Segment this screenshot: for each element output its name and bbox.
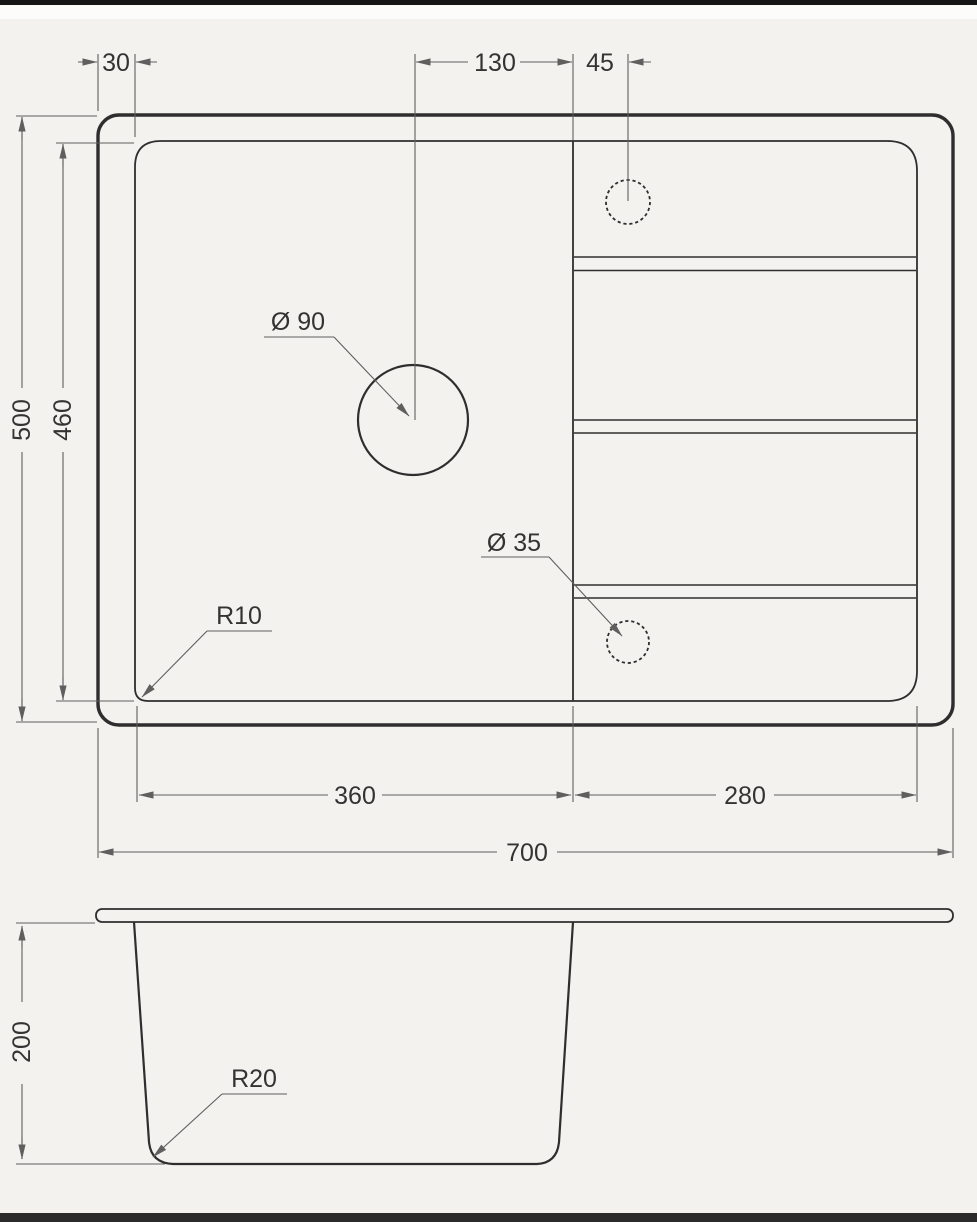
dim-130-label: 130 <box>474 49 516 77</box>
bottom-border-bar <box>0 1213 977 1222</box>
dim-280-label: 280 <box>724 782 766 810</box>
dim-700-label: 700 <box>506 839 548 867</box>
leader-line <box>142 631 207 697</box>
dia-35-label: Ø 35 <box>487 529 541 557</box>
dim-30-label: 30 <box>102 49 130 77</box>
dim-200-label: 200 <box>8 1021 36 1063</box>
sink-technical-drawing: 30 130 45 500 460 Ø 90 Ø 35 R1 <box>0 0 977 1222</box>
drainboard-grooves <box>574 257 916 598</box>
dia-90-label: Ø 90 <box>271 308 325 336</box>
dim-45-label: 45 <box>586 49 614 77</box>
top-view-dimensions: 30 130 45 500 460 Ø 90 Ø 35 R1 <box>8 49 953 867</box>
bowl-profile <box>134 922 573 1164</box>
leader-line <box>153 1094 222 1157</box>
dim-360-label: 360 <box>334 782 376 810</box>
paper-highlight-strip <box>0 5 977 19</box>
r10-label: R10 <box>216 602 262 630</box>
r20-label: R20 <box>231 1065 277 1093</box>
side-view <box>96 909 953 1164</box>
dim-460-label: 460 <box>49 399 77 441</box>
drain-hole-circle <box>358 365 468 475</box>
top-view <box>98 115 953 725</box>
top-border-bar <box>0 0 977 5</box>
dim-500-label: 500 <box>8 399 36 441</box>
rim-profile <box>96 909 953 922</box>
leader-line <box>549 557 622 636</box>
leader-line <box>334 337 409 416</box>
